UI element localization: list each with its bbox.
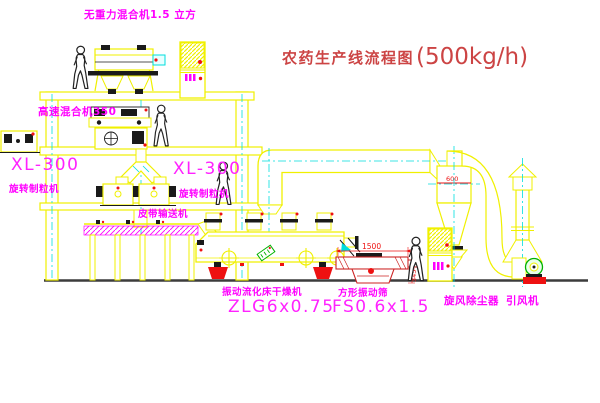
label-fan: 引风机 xyxy=(506,296,539,307)
label-granulator-left-name: 旋转制粒机 xyxy=(9,185,59,195)
gravity-free-mixer-machine xyxy=(88,45,165,94)
cad-drawing-canvas: 1500 345 600 xyxy=(0,0,600,403)
title-capacity: (500kg/h) xyxy=(416,44,528,70)
person-top-floor xyxy=(73,46,88,88)
fluid-bed-dryer-machine xyxy=(196,213,359,280)
label-granulator-mid-name: 旋转制粒机 xyxy=(179,190,229,200)
label-belt-conveyor: 皮带输送机 xyxy=(138,210,188,220)
label-high-speed-mixer: 高速混合机350 xyxy=(38,107,116,118)
control-cabinet-top xyxy=(180,42,205,98)
label-gravity-free-mixer: 无重力混合机1.5 立方 xyxy=(84,10,196,21)
label-cyclone: 旋风除尘器 xyxy=(444,296,499,307)
label-granulator-mid-model: XL-300 xyxy=(173,161,241,178)
label-dryer-model: ZLG6x0.75 xyxy=(228,299,335,316)
sieve-width-dim: 1500 xyxy=(362,242,381,251)
control-cabinet-ground xyxy=(428,228,452,281)
cyclone-dim: 600 xyxy=(446,175,458,183)
granulator-mid-machines xyxy=(96,184,176,206)
label-sieve-model: FS0.6x1.5 xyxy=(332,299,430,316)
granulator-left-machine xyxy=(0,131,40,153)
title-chinese: 农药生产线流程图 xyxy=(282,47,414,70)
person-second-floor xyxy=(154,105,168,146)
drawing-title: 农药生产线流程图 (500kg/h) xyxy=(282,44,528,70)
label-granulator-left-model: XL-300 xyxy=(11,157,79,174)
